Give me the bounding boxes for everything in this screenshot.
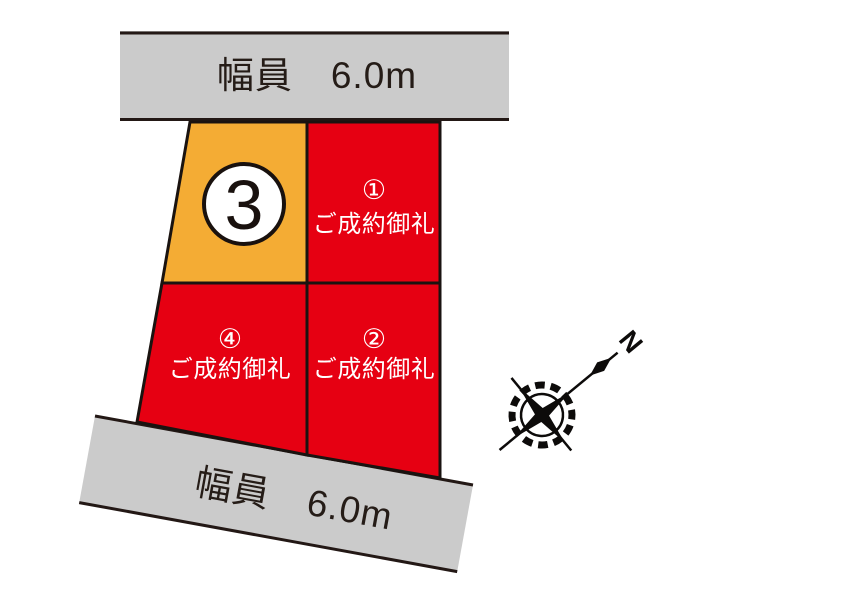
lot-2-status-label: ご成約御礼 <box>313 356 436 383</box>
site-plan-drawing: 幅員 6.0m 幅員 6.0m 3 ① ご成約御礼 ② ご成約御礼 <box>0 0 842 595</box>
lot-1: ① ご成約御礼 <box>307 122 440 283</box>
lot-3-number: 3 <box>225 166 264 244</box>
lot-4-status-label: ご成約御礼 <box>169 356 292 383</box>
road-top: 幅員 6.0m <box>120 31 509 121</box>
compass-north-label: N <box>613 325 649 359</box>
site-plan-canvas: 幅員 6.0m 幅員 6.0m 3 ① ご成約御礼 ② ご成約御礼 <box>0 0 842 595</box>
compass-needle-star <box>491 364 592 465</box>
compass: N <box>469 295 672 485</box>
lot-3: 3 <box>162 122 307 283</box>
lot-1-status-label: ご成約御礼 <box>313 211 436 238</box>
road-top-width-label: 幅員 6.0m <box>217 55 417 96</box>
lot-2-number-badge: ② <box>362 324 386 354</box>
lot-2: ② ご成約御礼 <box>307 283 440 478</box>
lot-4-number-badge: ④ <box>218 324 242 354</box>
lot-1-number-badge: ① <box>362 175 386 205</box>
